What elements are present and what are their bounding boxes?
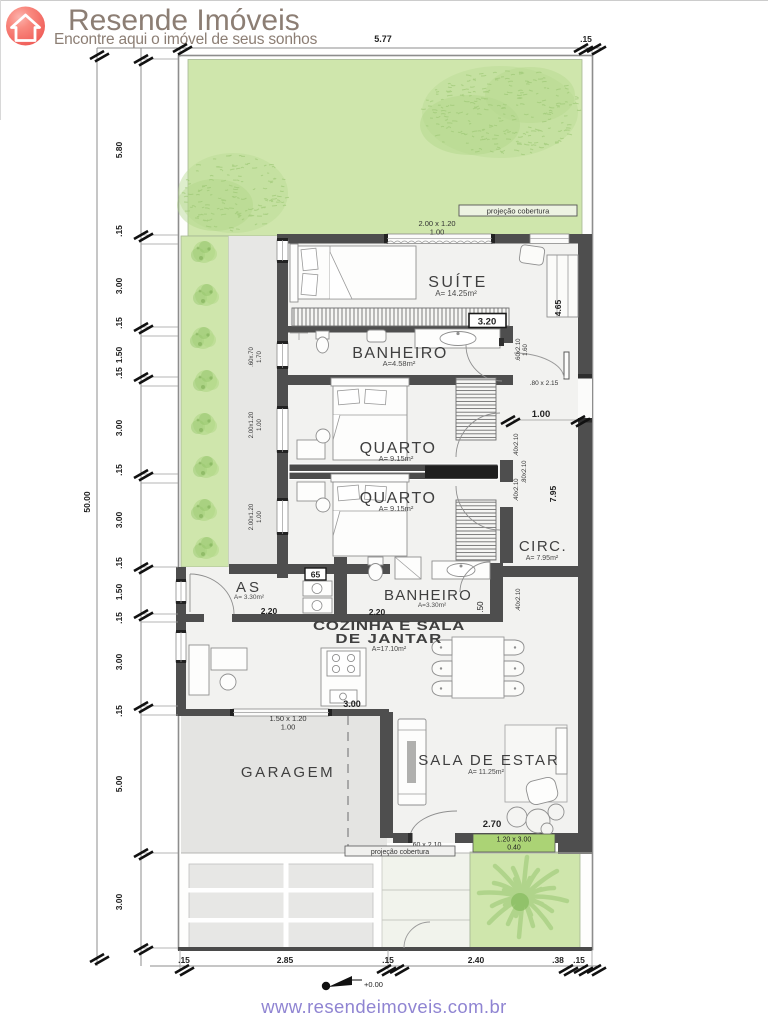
- svg-text:A=4.58m²: A=4.58m²: [383, 359, 416, 368]
- svg-text:GARAGEM: GARAGEM: [241, 764, 335, 781]
- svg-text:1.50: 1.50: [114, 346, 124, 363]
- svg-text:projeção cobertura: projeção cobertura: [487, 207, 550, 216]
- svg-text:5.77: 5.77: [374, 34, 392, 44]
- svg-text:1.00: 1.00: [257, 511, 263, 523]
- svg-text:1.60: 1.60: [523, 344, 529, 356]
- svg-text:3.00: 3.00: [343, 699, 361, 709]
- svg-text:COZINHA E SALA: COZINHA E SALA: [313, 620, 465, 633]
- svg-text:1.00: 1.00: [281, 723, 296, 732]
- svg-text:.80x2.10: .80x2.10: [522, 460, 528, 484]
- svg-text:7.95: 7.95: [548, 485, 558, 502]
- svg-text:.38: .38: [552, 955, 564, 965]
- svg-text:65: 65: [311, 570, 321, 580]
- svg-text:+0.00: +0.00: [364, 980, 383, 989]
- svg-text:0.40: 0.40: [507, 845, 521, 852]
- svg-text:2.00x1.20: 2.00x1.20: [249, 503, 255, 530]
- svg-text:2.70: 2.70: [483, 819, 502, 830]
- svg-text:4.65: 4.65: [553, 299, 563, 316]
- svg-text:.60x2.10: .60x2.10: [516, 338, 522, 362]
- svg-text:2.20: 2.20: [261, 606, 278, 616]
- svg-text:A= 9.15m²: A= 9.15m²: [379, 454, 414, 463]
- svg-text:3.00: 3.00: [114, 277, 124, 294]
- svg-text:.15: .15: [178, 955, 190, 965]
- svg-text:A= 9.15m²: A= 9.15m²: [379, 504, 414, 513]
- svg-text:5.80: 5.80: [114, 141, 124, 158]
- svg-text:CIRC.: CIRC.: [519, 538, 567, 555]
- svg-text:.15: .15: [114, 367, 124, 379]
- svg-text:.15: .15: [114, 705, 124, 717]
- svg-text:1.70: 1.70: [257, 351, 263, 363]
- svg-text:1.00: 1.00: [430, 228, 445, 237]
- svg-text:1.20 x 3.00: 1.20 x 3.00: [497, 837, 532, 844]
- svg-text:DE JANTAR: DE JANTAR: [335, 633, 442, 646]
- svg-text:.50: .50: [476, 601, 485, 613]
- svg-text:A= 11.25m²: A= 11.25m²: [468, 769, 505, 776]
- svg-text:.80 x 2.15: .80 x 2.15: [530, 380, 559, 387]
- svg-text:projeção cobertura: projeção cobertura: [371, 849, 429, 856]
- svg-text:A= 14.25m²: A= 14.25m²: [435, 289, 477, 298]
- svg-text:.60x.70: .60x.70: [249, 346, 255, 366]
- svg-text:5.00: 5.00: [114, 775, 124, 792]
- svg-text:3.00: 3.00: [114, 653, 124, 670]
- svg-text:.15: .15: [114, 464, 124, 476]
- svg-text:.40x2.10: .40x2.10: [514, 433, 520, 457]
- svg-text:.40x2.10: .40x2.10: [514, 478, 520, 502]
- svg-text:1.50: 1.50: [114, 583, 124, 600]
- svg-text:2.40: 2.40: [468, 955, 485, 965]
- svg-text:.40x2.10: .40x2.10: [516, 588, 522, 612]
- svg-text:A= 3.30m²: A= 3.30m²: [234, 594, 265, 601]
- svg-text:.15: .15: [573, 955, 585, 965]
- svg-text:2.00x1.20: 2.00x1.20: [249, 411, 255, 438]
- svg-text:.15: .15: [114, 317, 124, 329]
- svg-text:2.20: 2.20: [369, 607, 386, 617]
- svg-text:SALA DE ESTAR: SALA DE ESTAR: [418, 752, 560, 769]
- svg-text:3.00: 3.00: [114, 419, 124, 436]
- svg-text:.15: .15: [114, 612, 124, 624]
- svg-text:3.00: 3.00: [114, 893, 124, 910]
- svg-text:A= 7.95m²: A= 7.95m²: [526, 555, 559, 562]
- svg-text:3.20: 3.20: [478, 317, 497, 328]
- svg-text:3.00: 3.00: [114, 511, 124, 528]
- svg-text:.15: .15: [382, 955, 394, 965]
- svg-text:A=17.10m²: A=17.10m²: [372, 646, 407, 653]
- svg-text:1.00: 1.00: [532, 409, 551, 420]
- svg-text:2.85: 2.85: [277, 955, 294, 965]
- svg-text:.15: .15: [114, 225, 124, 237]
- svg-text:1.00: 1.00: [257, 419, 263, 431]
- svg-text:50.00: 50.00: [82, 491, 92, 513]
- svg-text:.15: .15: [580, 34, 592, 44]
- svg-text:.15: .15: [114, 557, 124, 569]
- svg-text:A=3.30m²: A=3.30m²: [418, 602, 447, 609]
